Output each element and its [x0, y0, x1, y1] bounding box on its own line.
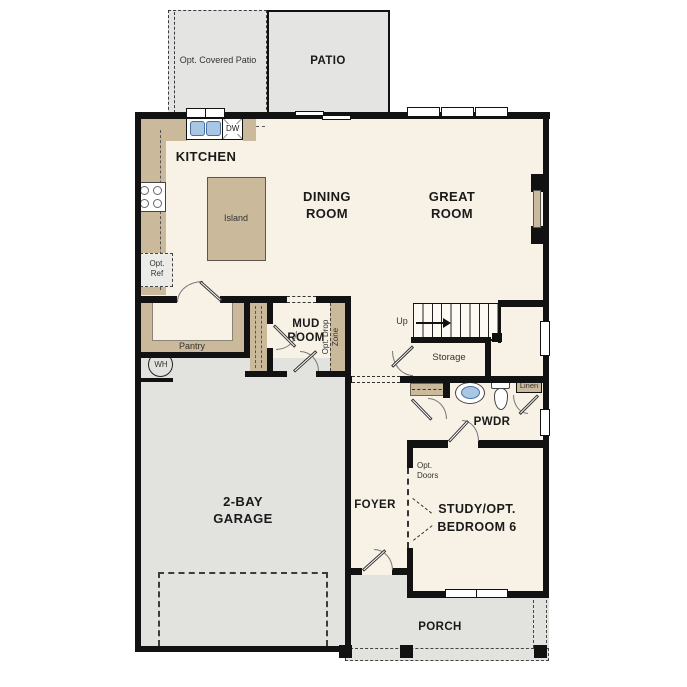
fireplace-insert — [533, 190, 541, 228]
fireplace-block — [531, 226, 543, 244]
wall-foyer-bottom — [345, 568, 362, 575]
island-label: Island — [224, 213, 248, 224]
wall-study-top — [407, 440, 448, 448]
burner-icon — [140, 186, 149, 195]
water-heater-label: WH — [154, 360, 167, 370]
wall — [245, 371, 287, 377]
closet-rod-dash — [412, 389, 447, 390]
study-label: STUDY/OPT.BEDROOM 6 — [437, 500, 516, 536]
window — [540, 321, 550, 356]
opt-doors-label: Opt.Doors — [417, 461, 438, 480]
window — [186, 108, 206, 118]
sink-basin — [190, 121, 205, 136]
floor-plan: Opt. Covered Patio PATIO DW Opt.Ref Isla… — [0, 0, 687, 687]
opt-ref-label: Opt.Ref — [149, 259, 164, 278]
stair-arrow-line — [416, 322, 444, 324]
opt-covered-patio-label: Opt. Covered Patio — [180, 55, 257, 66]
wall-storage-top — [411, 337, 491, 343]
storage-label: Storage — [432, 352, 465, 363]
window — [445, 589, 477, 598]
wall — [135, 352, 250, 358]
pantry-label: Pantry — [179, 341, 205, 352]
mud-bench-dash — [255, 306, 256, 368]
wall-garage-right — [345, 296, 351, 652]
wall — [135, 296, 177, 303]
window — [476, 589, 508, 598]
sliding-door — [295, 111, 324, 116]
kitchen-sink-icon — [186, 117, 224, 140]
wall-foyer-bottom — [392, 568, 412, 575]
hall-cased-opening-dashed — [352, 376, 400, 383]
up-label: Up — [396, 316, 408, 327]
burner-icon — [153, 186, 162, 195]
window — [475, 107, 508, 117]
wall — [244, 303, 250, 358]
wall-exterior-left — [135, 112, 141, 652]
dining-room-label: DININGROOM — [303, 188, 351, 222]
sliding-door — [322, 115, 351, 120]
window — [407, 107, 440, 117]
wall — [267, 303, 273, 324]
wall-garage-bottom — [135, 646, 351, 652]
foyer-label: FOYER — [354, 498, 396, 512]
burner-icon — [140, 199, 149, 208]
kitchen-counter-right-of-dw — [243, 118, 256, 141]
porch-post-right — [534, 645, 547, 658]
dishwasher-label: DW — [225, 124, 240, 134]
porch-post-middle — [400, 645, 413, 658]
range-icon — [137, 182, 166, 212]
sink-basin — [206, 121, 221, 136]
counter-opt-dash — [256, 126, 265, 127]
wall-closet-side — [443, 383, 450, 398]
window — [540, 409, 550, 436]
wall-study-top — [478, 440, 549, 448]
garage-label: 2-BAYGARAGE — [213, 493, 272, 527]
mud-bench-dash — [261, 306, 262, 368]
sink-bowl — [461, 386, 480, 399]
dishwasher-icon: DW — [222, 117, 243, 140]
mud-cased-opening-dashed — [287, 296, 316, 303]
garage-door-dashed — [158, 572, 328, 646]
wall-stair-hall — [498, 300, 549, 307]
opt-refrigerator: Opt.Ref — [140, 253, 173, 287]
pwdr-label: PWDR — [474, 415, 511, 429]
window — [441, 107, 474, 117]
patio-label: PATIO — [310, 54, 345, 68]
porch-label: PORCH — [418, 620, 462, 634]
pantry-interior — [152, 303, 233, 341]
wall-pwdr-top — [400, 376, 549, 383]
kitchen-label: KITCHEN — [176, 148, 237, 165]
window — [205, 108, 225, 118]
opt-doors-dashed-line — [407, 468, 409, 548]
wall-stair-side — [498, 303, 501, 343]
wall-study-left — [407, 440, 413, 468]
burner-icon — [153, 199, 162, 208]
great-room-label: GREATROOM — [429, 188, 476, 222]
porch-step — [345, 648, 549, 661]
stair-arrow-head — [443, 318, 451, 328]
mud-bench-strip — [250, 303, 267, 371]
opt-covered-patio-inner-dash — [174, 12, 175, 113]
